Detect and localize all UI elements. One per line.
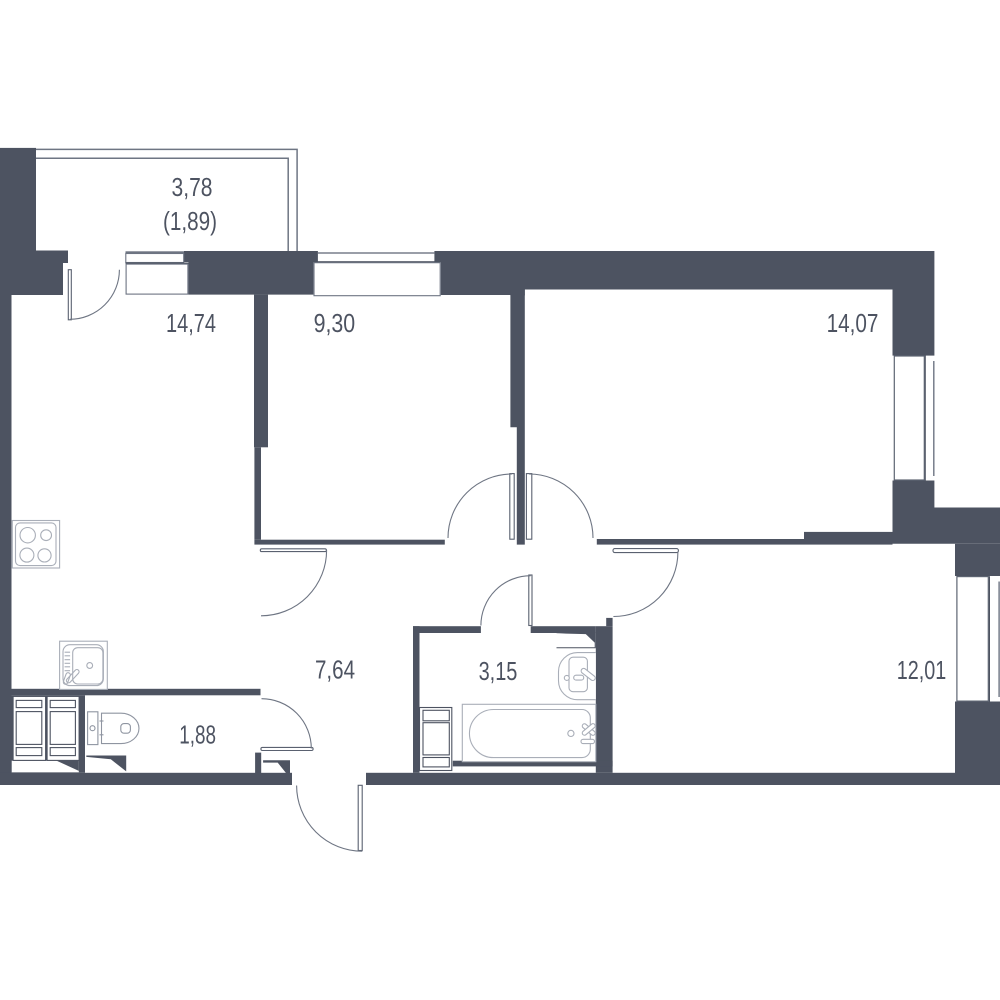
svg-text:12,01: 12,01 — [897, 655, 947, 685]
svg-text:14,07: 14,07 — [827, 308, 879, 338]
svg-text:9,30: 9,30 — [314, 308, 356, 338]
svg-text:3,78: 3,78 — [172, 172, 213, 202]
svg-text:7,64: 7,64 — [315, 655, 355, 685]
svg-text:(1,89): (1,89) — [163, 206, 217, 236]
svg-text:1,88: 1,88 — [179, 720, 216, 750]
svg-text:14,74: 14,74 — [166, 308, 216, 338]
svg-text:3,15: 3,15 — [479, 656, 518, 686]
